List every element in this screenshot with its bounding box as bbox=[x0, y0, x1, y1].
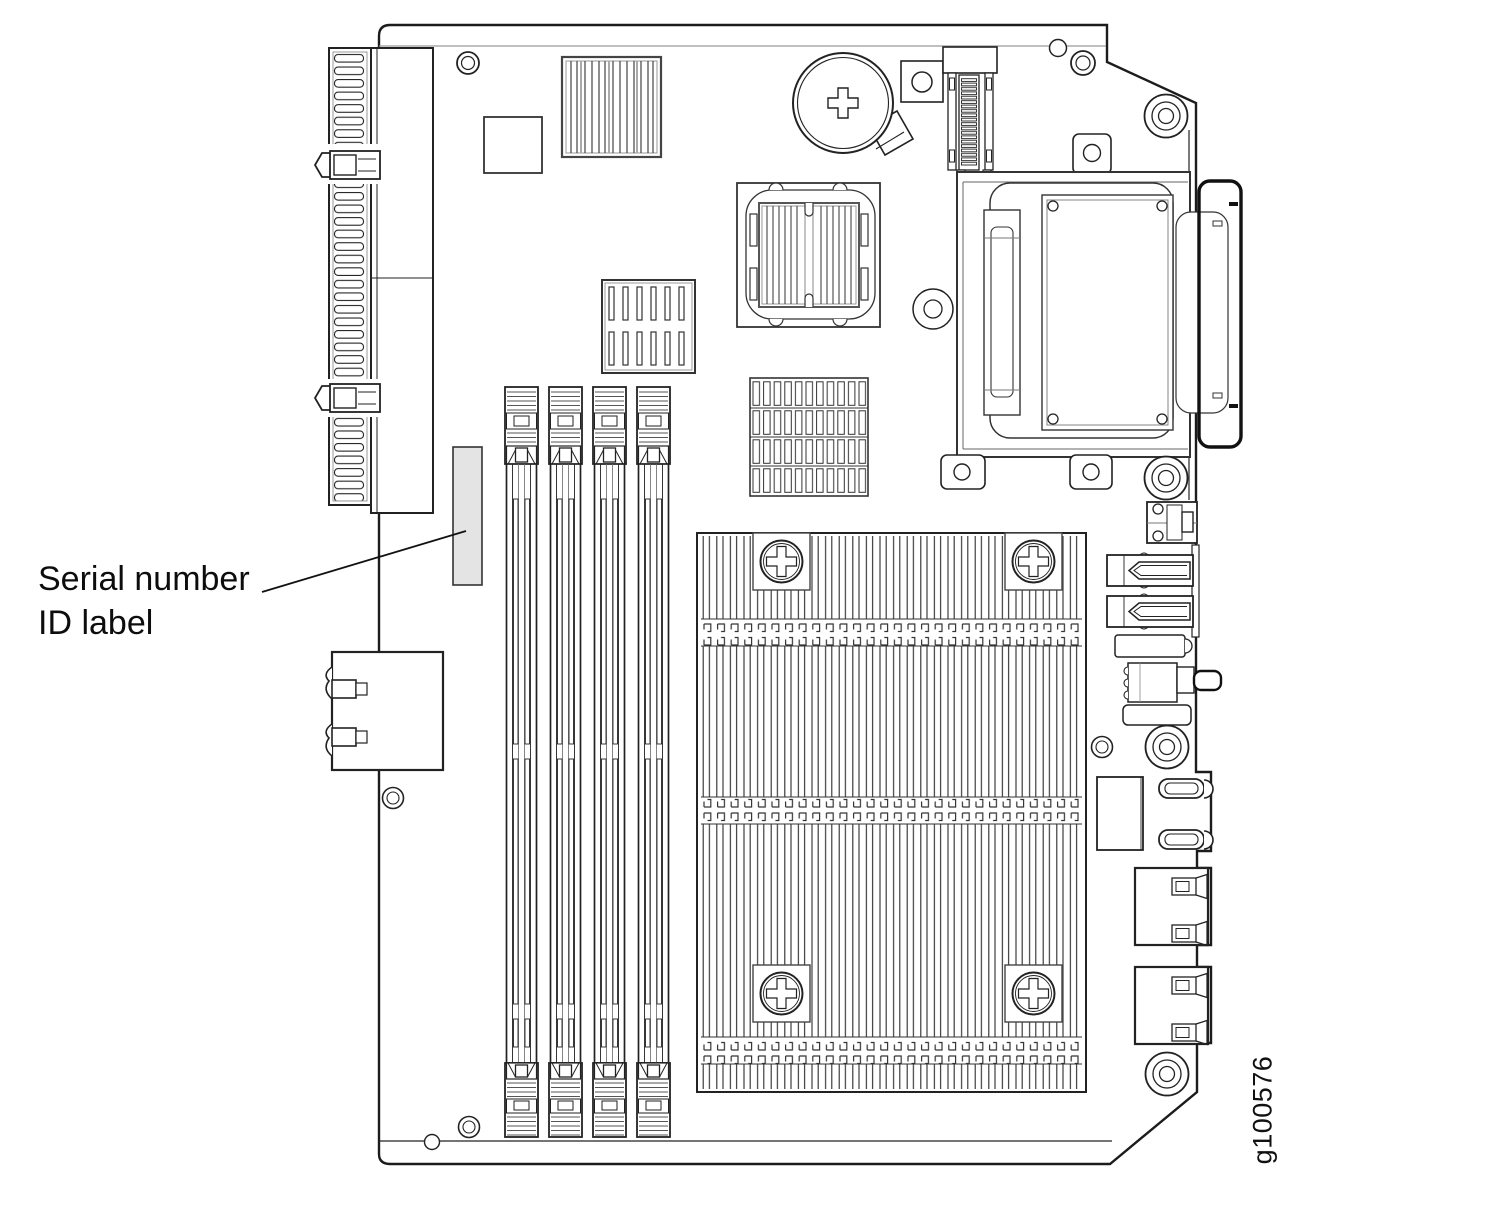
compact-flash-module bbox=[941, 134, 1190, 489]
reset-button-stub bbox=[1194, 671, 1221, 690]
cpu-heatsink bbox=[697, 533, 1086, 1092]
standoff-mid-right bbox=[1145, 457, 1188, 500]
usb-port-1 bbox=[1107, 553, 1193, 588]
component-bar bbox=[1123, 705, 1191, 725]
serial-number-callout: Serial number ID label bbox=[38, 558, 250, 645]
connector-latch-bottom bbox=[315, 384, 380, 412]
figure-id-text: g100576 bbox=[1248, 1056, 1279, 1165]
audio-jack bbox=[1124, 663, 1221, 702]
cf-card bbox=[1042, 195, 1173, 430]
left-edge-connector bbox=[315, 48, 433, 513]
heatsink-grid bbox=[750, 378, 868, 496]
callout-line-1: Serial number bbox=[38, 558, 250, 602]
standoff-top-right bbox=[1145, 95, 1188, 138]
serial-number-label bbox=[453, 447, 482, 585]
standoff-bottom-right bbox=[1146, 1053, 1189, 1096]
heatsink-screw-bottom-right bbox=[1005, 965, 1062, 1022]
heatsink-screw-top-right bbox=[1005, 533, 1062, 590]
motherboard-diagram-page: Serial number ID label g100576 bbox=[0, 0, 1500, 1228]
mounting-hole-top-right-small bbox=[1050, 40, 1067, 57]
external-connector-port bbox=[1176, 181, 1241, 447]
heatsink-top bbox=[562, 57, 661, 157]
usb-port-2 bbox=[1107, 594, 1193, 629]
heatsink-slotted bbox=[602, 280, 695, 373]
mounting-hole-bottom-left bbox=[459, 1117, 480, 1138]
heatsink-clip-band-1 bbox=[701, 619, 1082, 646]
small-chip bbox=[484, 117, 542, 173]
rj45-port-1 bbox=[1135, 868, 1208, 946]
heatsink-clip-band-3 bbox=[701, 1037, 1082, 1064]
rj45-port-2 bbox=[1135, 967, 1208, 1045]
standoff-right-mid bbox=[1146, 726, 1189, 769]
dimm-slot-1 bbox=[505, 387, 538, 1137]
connector-latch-top bbox=[315, 151, 380, 179]
dimm-slot-4 bbox=[637, 387, 670, 1137]
standoff-square bbox=[901, 61, 943, 102]
heatsink-clip-band-2 bbox=[701, 797, 1082, 824]
callout-line-2: ID label bbox=[38, 602, 250, 646]
led-block bbox=[1115, 635, 1192, 657]
power-connector bbox=[326, 652, 443, 770]
standoff-center bbox=[913, 289, 953, 329]
heatsink-screw-top-left bbox=[753, 533, 810, 590]
mounting-hole-left bbox=[383, 788, 404, 809]
mounting-hole-top-left bbox=[457, 52, 479, 74]
dimm-slot-3 bbox=[593, 387, 626, 1137]
mounting-hole-top-right bbox=[1071, 51, 1095, 75]
dimm-slot-2 bbox=[549, 387, 582, 1137]
mounting-hole-right bbox=[1092, 737, 1113, 758]
cpu-socket bbox=[737, 183, 880, 327]
switch-connector bbox=[1147, 502, 1197, 543]
heatsink-screw-bottom-left bbox=[753, 965, 810, 1022]
mounting-hole-bottom-edge bbox=[425, 1135, 440, 1150]
